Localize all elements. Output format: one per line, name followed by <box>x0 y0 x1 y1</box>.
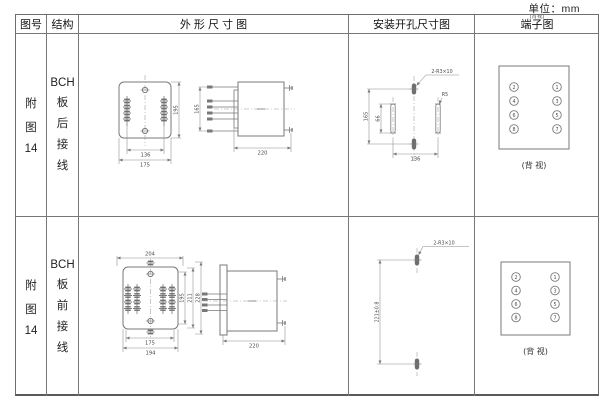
terminal-number: 1 <box>555 85 558 91</box>
terminal-circles <box>511 272 559 321</box>
structure-char: BCH <box>50 77 74 89</box>
header-fig-no: 图号 <box>16 15 47 34</box>
row1-outline-drawing: 195 136 175 <box>79 34 348 216</box>
structure-char: 线 <box>57 157 69 173</box>
terminal-number: 1 <box>553 274 556 280</box>
dim-body-width: 194 <box>146 350 157 356</box>
terminal-number: 6 <box>514 301 517 307</box>
dim-depth: 220 <box>258 151 268 157</box>
row1-terminal-drawing: 2 4 6 8 1 3 5 7 (背 视) <box>476 34 599 216</box>
row2-outline-cell: 204 195 211 228 175 194 <box>79 217 349 396</box>
fig-char: 图 <box>25 301 37 317</box>
terminal-body <box>499 66 569 149</box>
fig-char: 附 <box>25 277 37 293</box>
row1-outline-cell: 195 136 175 <box>79 34 349 217</box>
slot-right <box>435 97 441 140</box>
holes-label: 2-R3×10 <box>431 69 452 75</box>
terminal-body <box>501 262 570 335</box>
row1-fig-no-cell: 附 图 14 <box>16 34 47 217</box>
dim-slot-spacing: 136 <box>411 157 421 163</box>
row2-structure-cell: BCH 板 前 接 线 <box>47 217 79 396</box>
slot-left <box>390 97 396 140</box>
structure-char: 前 <box>57 297 69 313</box>
dim-slot-length: 66 <box>376 115 382 121</box>
terminal-number: 7 <box>553 315 556 321</box>
structure-char: 板 <box>57 94 69 110</box>
header-terminal-note: (背视) <box>530 15 545 21</box>
mount-hole-bottom <box>413 358 422 369</box>
row2-fig-no-cell: 附 图 14 <box>16 217 47 396</box>
row2-terminal-drawing: 2 4 6 8 1 3 5 7 (背 视) <box>476 218 599 396</box>
terminal-number: 6 <box>512 113 515 119</box>
terminal-number: 8 <box>514 315 517 321</box>
terminal-numbers: 2 4 6 8 1 3 5 7 <box>512 85 558 133</box>
fig-char: 图 <box>25 119 37 135</box>
spec-table: 图号 结构 外 形 尺 寸 图 安装开孔尺寸图 (背视) 端子图 附 图 14 … <box>15 14 599 396</box>
terminal-number: 5 <box>555 113 558 119</box>
row1-install-drawing: 66 165 136 2-R3×10 R5 <box>349 34 474 216</box>
holes-label: 2-R3×10 <box>433 240 454 246</box>
row1-structure-cell: BCH 板 后 接 线 <box>47 34 79 217</box>
terminal-number: 7 <box>555 127 558 133</box>
header-terminal: (背视) 端子图 <box>475 15 599 34</box>
terminal-number: 2 <box>514 274 517 280</box>
fig-char: 14 <box>25 325 38 337</box>
row1-install-cell: 66 165 136 2-R3×10 R5 <box>349 34 475 217</box>
dim-height-2: 211 <box>188 293 194 303</box>
dim-pin-span: 165 <box>194 104 200 114</box>
front-view: 204 195 211 228 175 194 <box>117 251 203 356</box>
structure-char: 板 <box>57 276 69 292</box>
row2-outline-drawing: 204 195 211 228 175 194 <box>79 218 348 396</box>
back-view-caption: (背 视) <box>523 346 548 356</box>
structure-char: 后 <box>57 115 69 131</box>
mount-hole-bottom <box>410 139 419 150</box>
side-view: 165 220 <box>194 82 295 157</box>
structure-char: 线 <box>57 339 69 355</box>
terminal-circles <box>509 83 561 134</box>
terminal-number: 5 <box>553 301 556 307</box>
fig-char: 附 <box>25 95 37 111</box>
header-outline: 外 形 尺 寸 图 <box>79 15 349 34</box>
dim-height-3: 228 <box>196 293 202 303</box>
row2-install-cell: 221±0.8 2-R3×10 <box>349 217 475 396</box>
side-view: 220 <box>202 265 287 350</box>
row2-structure: BCH 板 前 接 线 <box>50 217 74 396</box>
row2-fig-no: 附 图 14 <box>25 217 38 396</box>
fig-char: 14 <box>25 143 38 155</box>
row2-install-drawing: 221±0.8 2-R3×10 <box>349 218 474 396</box>
terminal-number: 4 <box>512 99 515 105</box>
header-install: 安装开孔尺寸图 <box>349 15 475 34</box>
row2-terminal-cell: 2 4 6 8 1 3 5 7 (背 视) <box>475 217 599 396</box>
dim-hole-span: 165 <box>364 112 370 122</box>
dim-hole-spacing: 175 <box>145 340 155 346</box>
dim-height-1: 195 <box>180 293 186 303</box>
terminal-number: 8 <box>512 127 515 133</box>
dim-hole-span: 221±0.8 <box>375 301 381 322</box>
terminal-numbers: 2 4 6 8 1 3 5 7 <box>514 274 556 321</box>
terminal-number: 3 <box>555 99 558 105</box>
row1-terminal-cell: 2 4 6 8 1 3 5 7 (背 视) <box>475 34 599 217</box>
back-view-caption: (背 视) <box>521 160 546 170</box>
row1-fig-no: 附 图 14 <box>25 34 38 216</box>
structure-char: 接 <box>57 318 69 334</box>
dim-flange-width: 204 <box>145 251 156 257</box>
terminal-number: 4 <box>514 288 517 294</box>
header-structure: 结构 <box>47 15 79 34</box>
structure-char: BCH <box>50 259 74 271</box>
terminal-number: 3 <box>553 288 556 294</box>
slot-radius-label: R5 <box>442 92 448 98</box>
structure-char: 接 <box>57 136 69 152</box>
dim-hole-spacing: 136 <box>141 153 151 159</box>
mount-hole-top <box>413 254 422 265</box>
front-view: 195 136 175 <box>119 75 181 169</box>
dim-body-width: 175 <box>140 163 150 169</box>
dim-front-height: 195 <box>173 105 179 115</box>
terminal-number: 2 <box>512 85 515 91</box>
dim-depth: 220 <box>249 343 259 349</box>
row1-structure: BCH 板 后 接 线 <box>50 34 74 216</box>
